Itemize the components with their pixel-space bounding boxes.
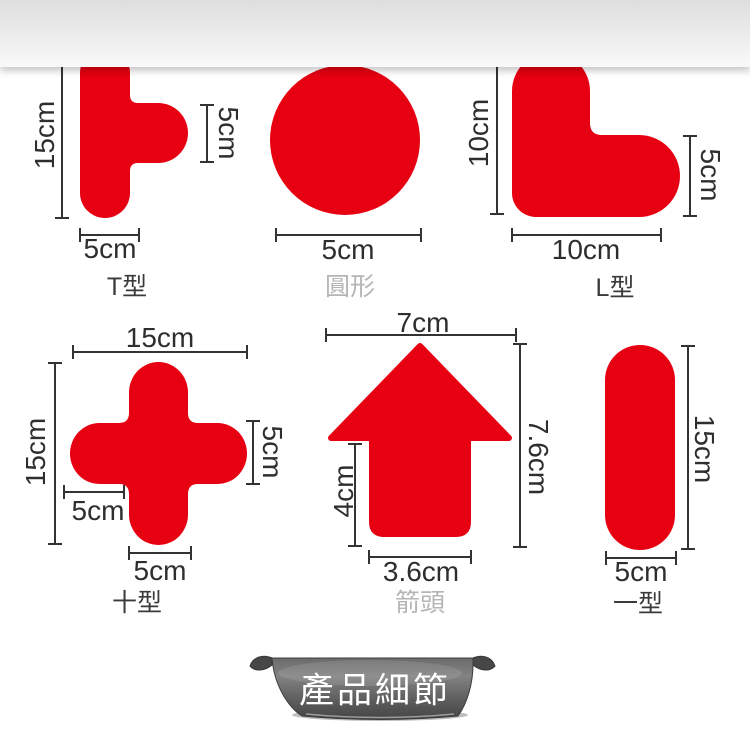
cross-right-dim-label: 5cm <box>256 426 288 479</box>
t-shape-fill <box>80 48 188 218</box>
cross-bottom-dim-line <box>128 552 192 554</box>
bar-right-dim-label: 15cm <box>688 415 720 483</box>
arrow-left-dim-label: 4cm <box>328 465 360 518</box>
product-details-title: 產品細節 <box>299 663 451 714</box>
t-shape-name: T型 <box>107 267 147 303</box>
cross-left-dim-label: 15cm <box>20 418 52 486</box>
arrow-top-dim-label: 7cm <box>397 307 450 339</box>
cross-left-dim-line <box>54 362 56 545</box>
circle-graphic <box>270 65 420 215</box>
l-shape-graphic <box>512 52 680 217</box>
l-left-dim-label: 10cm <box>463 99 495 167</box>
l-shape-name: L型 <box>596 268 635 304</box>
cross-top-dim-label: 15cm <box>126 322 194 354</box>
t-right-dim-label: 5cm <box>212 107 244 160</box>
arrow-right-dim-label: 7.6cm <box>522 419 554 495</box>
bar-shape-name: 一型 <box>613 584 663 620</box>
l-bottom-dim-label: 10cm <box>552 234 620 266</box>
t-left-dim-line <box>61 50 63 219</box>
l-shape-fill <box>512 52 680 217</box>
arrow-right-dim-line <box>519 343 521 548</box>
t-bottom-dim-label: 5cm <box>84 233 137 265</box>
t-left-dim-label: 15cm <box>29 101 61 169</box>
ribbon-curl-left <box>250 656 272 670</box>
l-left-dim-line <box>496 52 498 215</box>
t-shape-graphic <box>80 48 188 218</box>
product-details-band <box>0 0 750 67</box>
bar-shape-graphic <box>605 345 675 550</box>
ribbon-curl-right <box>473 656 495 670</box>
cross-shape-name: 十型 <box>112 583 162 619</box>
cross-inner-dim-label: 5cm <box>72 495 125 527</box>
l-right-dim-label: 5cm <box>694 149 726 202</box>
cross-right-dim-line <box>252 420 254 485</box>
arrow-shape-name: 箭頭 <box>395 583 445 619</box>
cross-inner-dim-line <box>63 491 125 493</box>
circle-shape-name: 圓形 <box>325 267 375 303</box>
l-right-dim-line <box>689 135 691 217</box>
circle-bottom-dim-label: 5cm <box>322 234 375 266</box>
t-right-dim-line <box>206 104 208 163</box>
product-spec-diagram: 10cm 15cm 5cm 5cm T型 5cm 圓形 10cm 5cm 10c… <box>0 0 750 750</box>
